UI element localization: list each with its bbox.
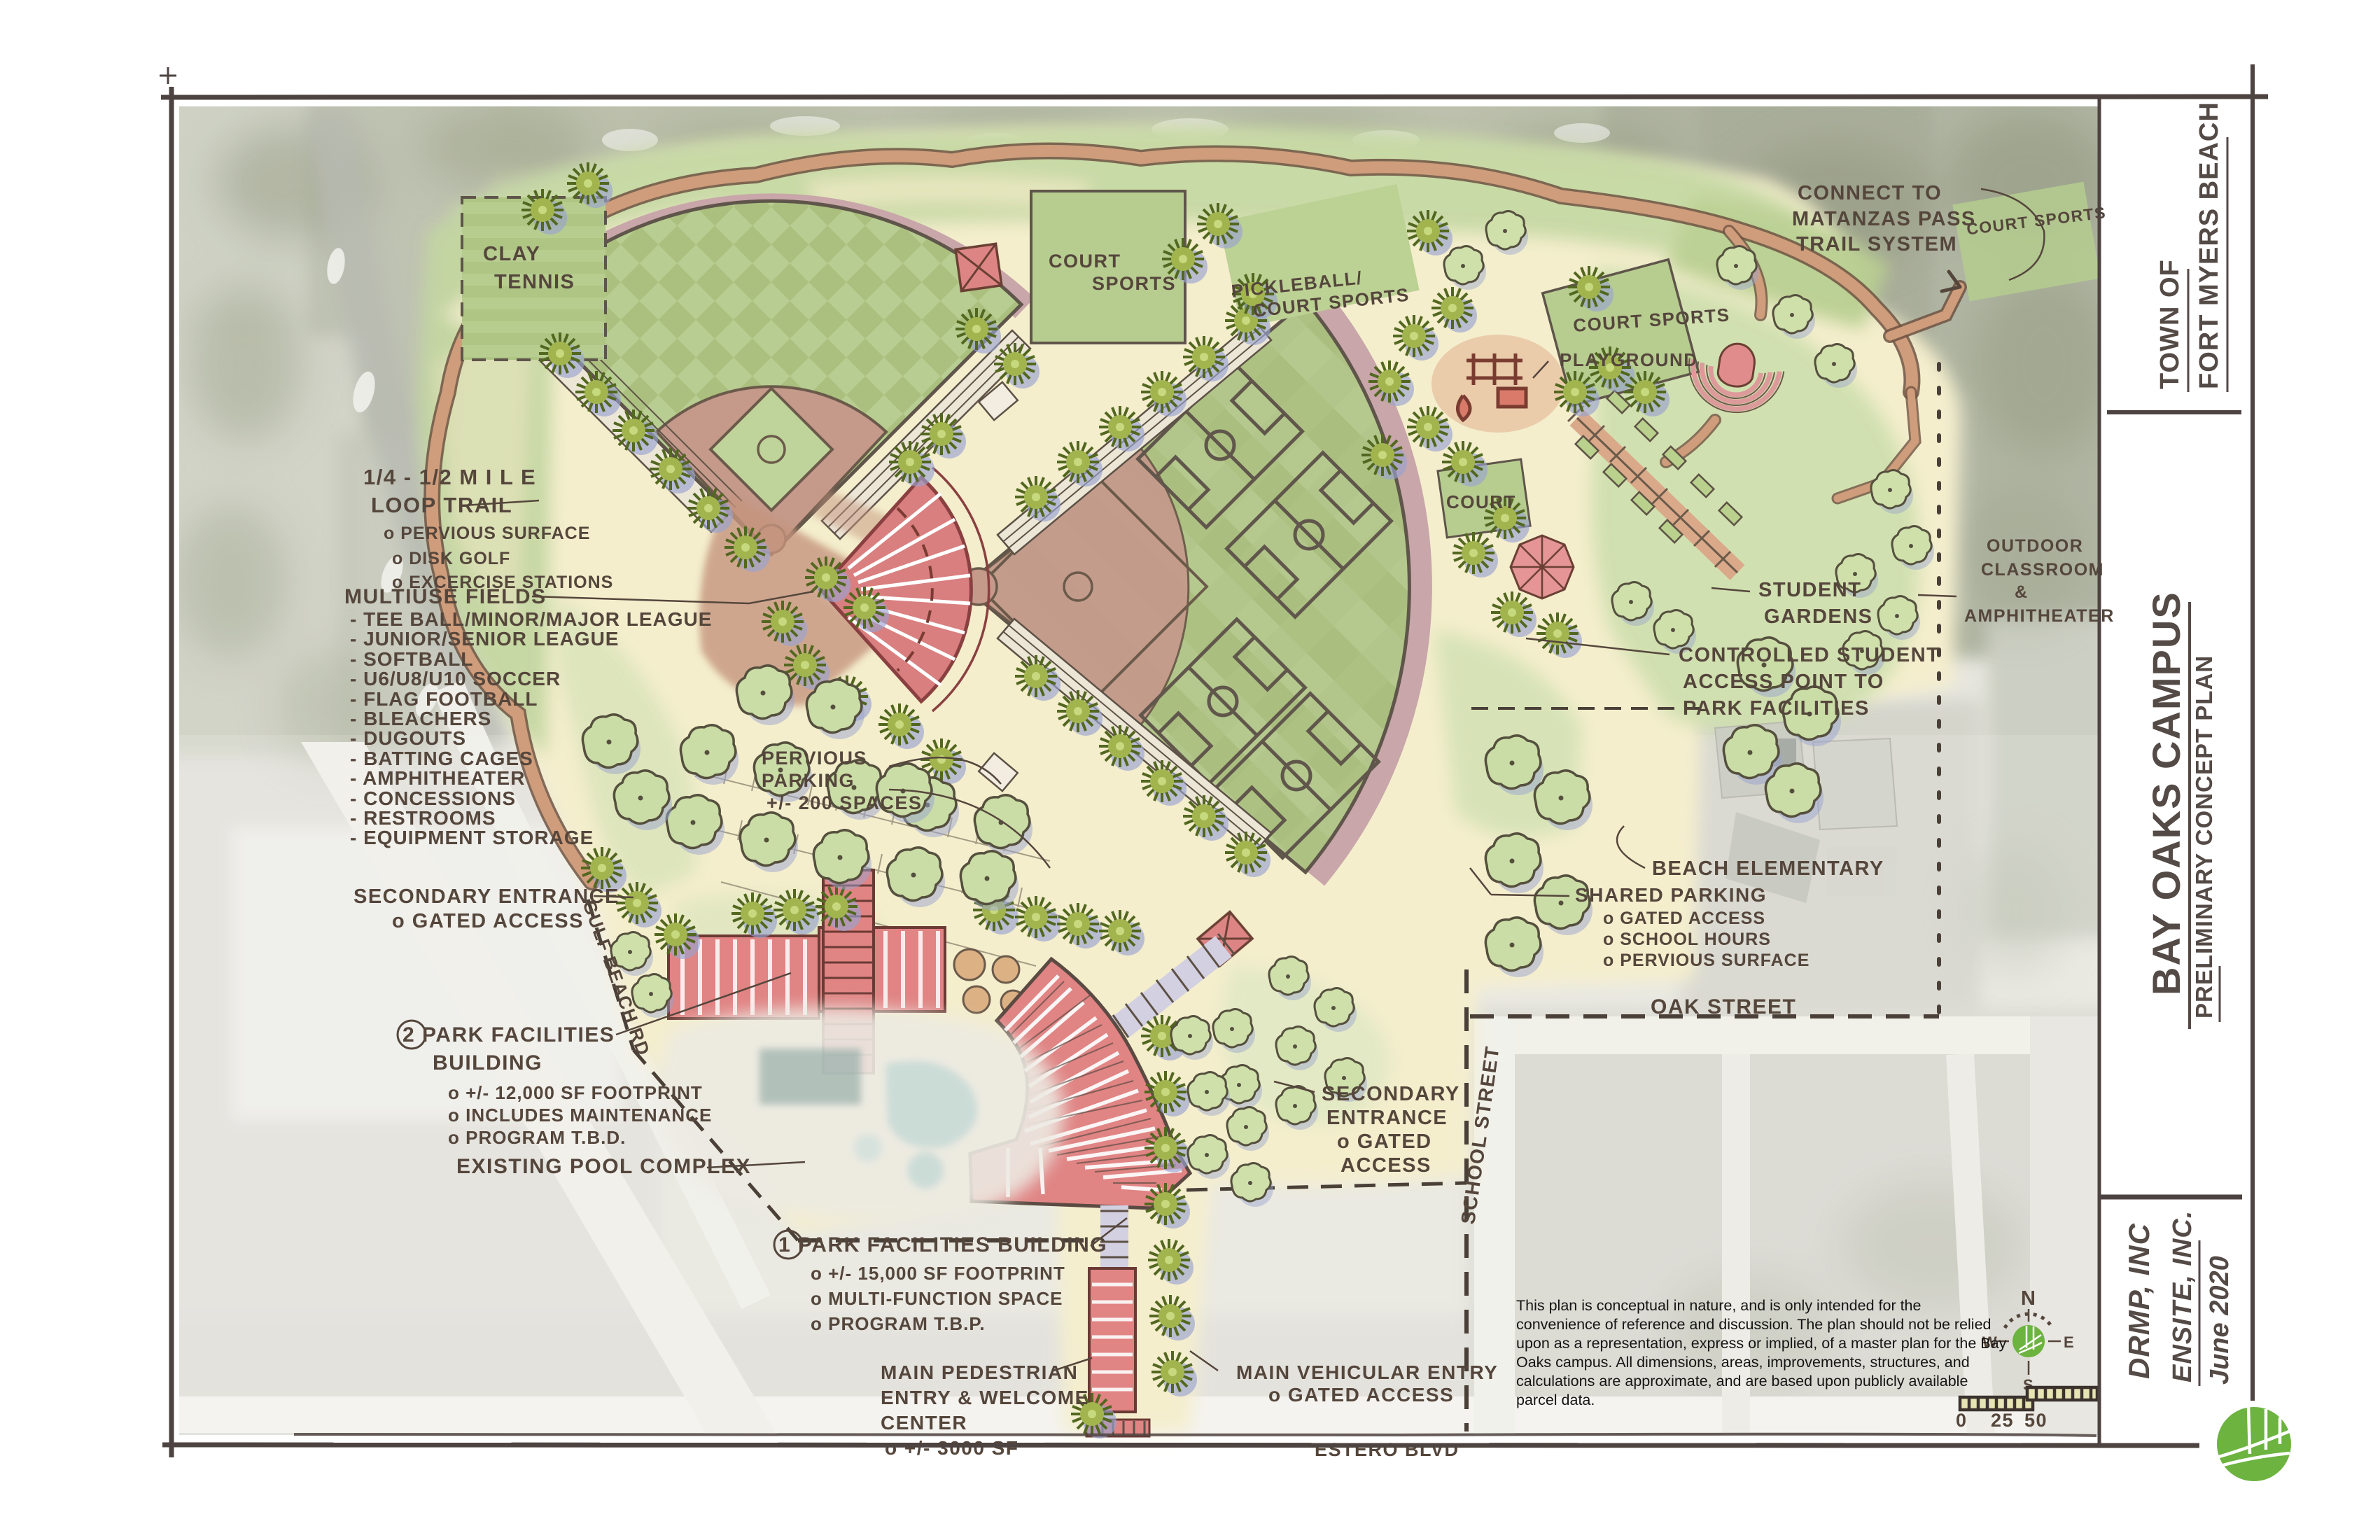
svg-text:o GATED ACCESS: o GATED ACCESS	[1268, 1384, 1454, 1406]
svg-text:- SOFTBALL: - SOFTBALL	[350, 648, 473, 670]
svg-text:MAIN PEDESTRIAN: MAIN PEDESTRIAN	[881, 1361, 1078, 1383]
svg-text:EXISTING POOL COMPLEX: EXISTING POOL COMPLEX	[456, 1155, 751, 1178]
svg-text:ESTERO BLVD: ESTERO BLVD	[1315, 1439, 1459, 1460]
svg-text:PERVIOUS: PERVIOUS	[762, 748, 867, 769]
svg-text:COURT: COURT	[1446, 491, 1516, 512]
svg-text:CONTROLLED STUDENT: CONTROLLED STUDENT	[1679, 644, 1940, 666]
svg-text:OUTDOOR: OUTDOOR	[1987, 536, 2083, 556]
svg-text:- FLAG FOOTBALL: - FLAG FOOTBALL	[350, 688, 538, 710]
svg-text:- TEE BALL/MINOR/MAJOR LEAGUE: - TEE BALL/MINOR/MAJOR LEAGUE	[350, 608, 712, 630]
svg-text:o PROGRAM T.B.P.: o PROGRAM T.B.P.	[811, 1313, 986, 1334]
svg-text:FORT MYERS BEACH: FORT MYERS BEACH	[2194, 101, 2224, 389]
svg-text:- JUNIOR/SENIOR LEAGUE: - JUNIOR/SENIOR LEAGUE	[350, 628, 619, 650]
svg-text:PARK FACILITIES: PARK FACILITIES	[1683, 697, 1870, 720]
svg-text:o DISK GOLF: o DISK GOLF	[392, 549, 510, 568]
svg-text:&: &	[2015, 582, 2029, 602]
svg-text:ENTRY & WELCOME: ENTRY & WELCOME	[881, 1387, 1089, 1408]
svg-text:- CONCESSIONS: - CONCESSIONS	[350, 787, 516, 809]
svg-text:2 PARK FACILITIES: 2 PARK FACILITIES	[402, 1023, 615, 1046]
svg-text:MAIN VEHICULAR ENTRY: MAIN VEHICULAR ENTRY	[1236, 1361, 1498, 1383]
svg-text:parcel data.: parcel data.	[1516, 1392, 1595, 1408]
svg-text:1/4 - 1/2 M I L E: 1/4 - 1/2 M I L E	[363, 465, 536, 489]
svg-text:GARDENS: GARDENS	[1764, 605, 1873, 628]
svg-text:o SCHOOL HOURS: o SCHOOL HOURS	[1603, 930, 1771, 949]
svg-text:o +/- 15,000 SF FOOTPRINT: o +/- 15,000 SF FOOTPRINT	[811, 1263, 1065, 1284]
svg-text:o PERVIOUS SURFACE: o PERVIOUS SURFACE	[384, 524, 590, 543]
svg-text:- DUGOUTS: - DUGOUTS	[350, 727, 466, 749]
svg-text:N: N	[2021, 1287, 2036, 1310]
svg-text:MULTIUSE FIELDS: MULTIUSE FIELDS	[344, 585, 547, 608]
svg-text:ACCESS: ACCESS	[1340, 1154, 1431, 1177]
svg-text:25: 25	[1991, 1410, 2014, 1431]
svg-text:MATANZAS PASS: MATANZAS PASS	[1792, 208, 1976, 230]
svg-text:o INCLUDES MAINTENANCE: o INCLUDES MAINTENANCE	[448, 1105, 712, 1126]
svg-text:SPORTS: SPORTS	[1092, 273, 1176, 294]
svg-text:o +/- 12,000 SF FOOTPRINT: o +/- 12,000 SF FOOTPRINT	[448, 1082, 703, 1103]
svg-text:- EQUIPMENT STORAGE: - EQUIPMENT STORAGE	[350, 827, 594, 848]
svg-text:- U6/U8/U10 SOCCER: - U6/U8/U10 SOCCER	[350, 668, 561, 689]
svg-text:PLAYGROUND: PLAYGROUND	[1560, 349, 1698, 370]
svg-text:BUILDING: BUILDING	[433, 1051, 542, 1074]
svg-text:ENTRANCE: ENTRANCE	[1326, 1107, 1448, 1129]
svg-text:TRAIL SYSTEM: TRAIL SYSTEM	[1796, 233, 1957, 255]
svg-text:CLASSROOM: CLASSROOM	[1981, 560, 2104, 580]
svg-text:calculations are approximate,: calculations are approximate, and are ba…	[1516, 1373, 1968, 1389]
svg-text:upon as a representation, expr: upon as a representation, express or imp…	[1516, 1335, 2007, 1352]
svg-text:- BLEACHERS: - BLEACHERS	[350, 708, 491, 729]
svg-text:DRMP, INC: DRMP, INC	[2122, 1223, 2155, 1379]
svg-text:BEACH ELEMENTARY: BEACH ELEMENTARY	[1652, 857, 1884, 880]
svg-text:- AMPHITHEATER: - AMPHITHEATER	[350, 767, 525, 789]
svg-text:PRELIMINARY CONCEPT PLAN: PRELIMINARY CONCEPT PLAN	[2191, 655, 2217, 1018]
svg-text:CONNECT TO: CONNECT TO	[1798, 182, 1942, 204]
svg-text:STUDENT: STUDENT	[1758, 579, 1861, 601]
svg-text:SECONDARY: SECONDARY	[1322, 1083, 1460, 1105]
svg-text:LOOP TRAIL: LOOP TRAIL	[371, 493, 512, 517]
svg-text:o PERVIOUS SURFACE: o PERVIOUS SURFACE	[1603, 951, 1809, 970]
svg-text:CENTER: CENTER	[881, 1412, 967, 1434]
svg-text:TENNIS: TENNIS	[494, 271, 575, 293]
svg-text:E: E	[2064, 1333, 2075, 1351]
svg-text:CLAY: CLAY	[483, 243, 540, 265]
svg-text:o GATED ACCESS: o GATED ACCESS	[392, 910, 584, 932]
svg-text:AMPHITHEATER: AMPHITHEATER	[1964, 606, 2115, 626]
svg-text:o PROGRAM T.B.D.: o PROGRAM T.B.D.	[448, 1127, 626, 1148]
svg-text:1 PARK FACILITIES BUILDING: 1 PARK FACILITIES BUILDING	[778, 1233, 1107, 1256]
svg-text:- BATTING CAGES: - BATTING CAGES	[350, 748, 533, 769]
svg-text:o GATED: o GATED	[1337, 1130, 1432, 1153]
svg-text:SHARED PARKING: SHARED PARKING	[1575, 884, 1767, 906]
svg-text:ACCESS POINT TO: ACCESS POINT TO	[1683, 671, 1884, 693]
svg-text:Oaks campus. All dimensions, a: Oaks campus. All dimensions, areas, impr…	[1516, 1354, 1970, 1371]
svg-text:- RESTROOMS: - RESTROOMS	[350, 807, 496, 829]
svg-text:June 2020: June 2020	[2205, 1256, 2234, 1385]
svg-text:o GATED ACCESS: o GATED ACCESS	[1603, 909, 1765, 928]
svg-text:50: 50	[2024, 1410, 2047, 1431]
svg-text:BAY OAKS CAMPUS: BAY OAKS CAMPUS	[2144, 591, 2188, 995]
svg-text:COURT: COURT	[1049, 251, 1121, 272]
svg-text:PARKING: PARKING	[762, 770, 855, 791]
svg-text:o +/- 3000 SF: o +/- 3000 SF	[885, 1437, 1018, 1459]
svg-text:TOWN OF: TOWN OF	[2155, 259, 2185, 389]
svg-text:convenience of reference and d: convenience of reference and discussion.…	[1516, 1316, 1991, 1333]
svg-text:0: 0	[1956, 1410, 1968, 1431]
svg-text:+/- 200 SPACES: +/- 200 SPACES	[766, 792, 922, 813]
svg-text:OAK STREET: OAK STREET	[1651, 995, 1796, 1018]
svg-text:This plan is conceptual in nat: This plan is conceptual in nature, and i…	[1516, 1297, 1921, 1314]
svg-text:ENSITE, INC.: ENSITE, INC.	[2168, 1210, 2197, 1382]
svg-text:o MULTI-FUNCTION SPACE: o MULTI-FUNCTION SPACE	[811, 1288, 1063, 1309]
